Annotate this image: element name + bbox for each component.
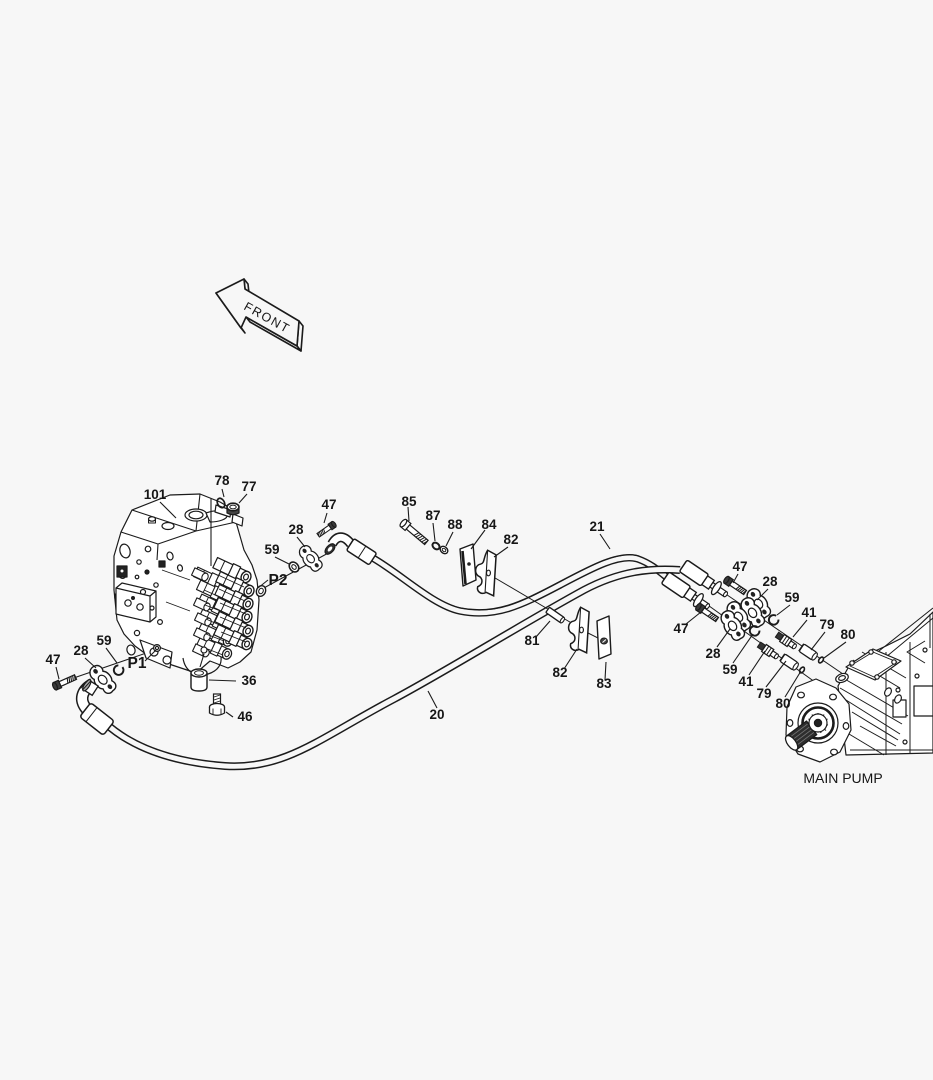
svg-text:P2: P2 xyxy=(269,572,288,589)
svg-text:47: 47 xyxy=(732,559,747,574)
svg-text:87: 87 xyxy=(425,508,440,523)
svg-text:P1: P1 xyxy=(128,655,147,672)
svg-text:47: 47 xyxy=(321,497,336,512)
svg-text:78: 78 xyxy=(214,473,230,488)
svg-text:20: 20 xyxy=(429,707,444,722)
svg-text:84: 84 xyxy=(481,517,497,532)
svg-text:85: 85 xyxy=(401,494,417,509)
svg-text:36: 36 xyxy=(241,673,257,688)
svg-text:41: 41 xyxy=(738,674,754,689)
svg-text:21: 21 xyxy=(589,519,605,534)
svg-text:28: 28 xyxy=(288,522,304,537)
svg-text:47: 47 xyxy=(45,652,60,667)
svg-text:59: 59 xyxy=(784,590,799,605)
svg-text:101: 101 xyxy=(144,487,167,502)
svg-text:88: 88 xyxy=(447,517,463,532)
svg-text:28: 28 xyxy=(73,643,89,658)
svg-text:41: 41 xyxy=(801,605,817,620)
svg-text:MAIN PUMP: MAIN PUMP xyxy=(803,770,882,786)
svg-text:80: 80 xyxy=(840,627,855,642)
svg-text:28: 28 xyxy=(705,646,721,661)
svg-text:59: 59 xyxy=(264,542,279,557)
svg-text:80: 80 xyxy=(775,696,790,711)
svg-text:59: 59 xyxy=(722,662,737,677)
svg-text:79: 79 xyxy=(756,686,771,701)
svg-text:79: 79 xyxy=(819,617,834,632)
svg-text:77: 77 xyxy=(241,479,256,494)
svg-text:82: 82 xyxy=(503,532,518,547)
svg-text:46: 46 xyxy=(237,709,253,724)
svg-text:59: 59 xyxy=(96,633,111,648)
svg-text:28: 28 xyxy=(762,574,778,589)
svg-text:83: 83 xyxy=(596,676,612,691)
